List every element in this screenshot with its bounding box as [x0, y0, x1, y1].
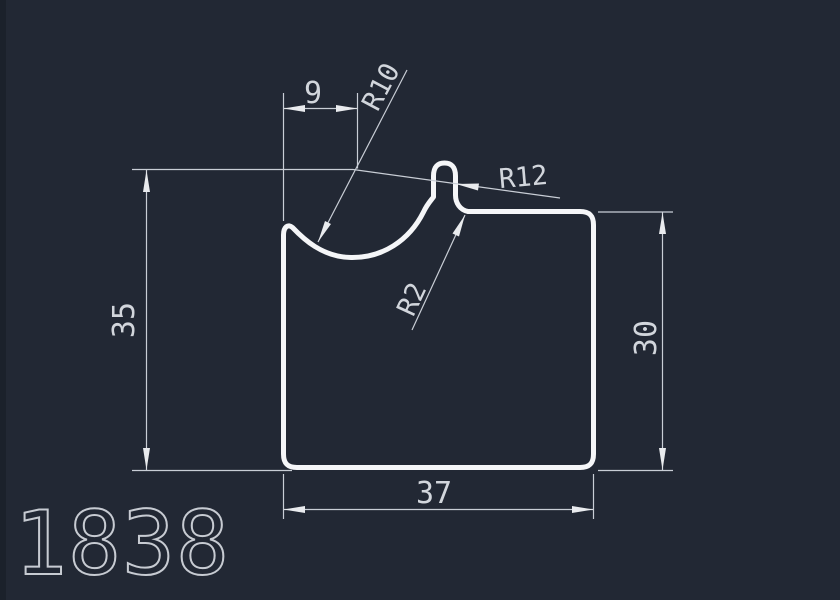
arrowhead-r12 — [456, 184, 479, 191]
dim-label-bottom-width: 37 — [416, 476, 452, 511]
cad-viewport: 9 35 30 37 R10 R12 R2 1838 — [0, 0, 840, 600]
arrowhead-35-bottom — [143, 448, 150, 470]
arrowhead-9-left — [284, 105, 306, 112]
radius-label-r10: R10 — [356, 58, 406, 116]
radius-label-r2: R2 — [391, 278, 433, 321]
dim-label-right-height: 30 — [629, 320, 664, 356]
arrowhead-35-top — [143, 170, 150, 192]
dim-label-top-width: 9 — [304, 76, 322, 111]
dim-label-left-height: 35 — [107, 302, 142, 338]
arrowhead-30-bottom — [659, 448, 666, 470]
arrowhead-37-right — [572, 506, 594, 513]
arrowhead-r2 — [453, 215, 466, 237]
profile-outline — [284, 163, 594, 468]
arrowhead-37-left — [284, 506, 306, 513]
arrowhead-30-top — [659, 213, 666, 235]
part-number-label: 1838 — [14, 500, 230, 588]
arrowhead-r10 — [318, 221, 331, 242]
radius-label-r12: R12 — [498, 160, 549, 195]
arrowhead-9-right — [336, 105, 358, 112]
